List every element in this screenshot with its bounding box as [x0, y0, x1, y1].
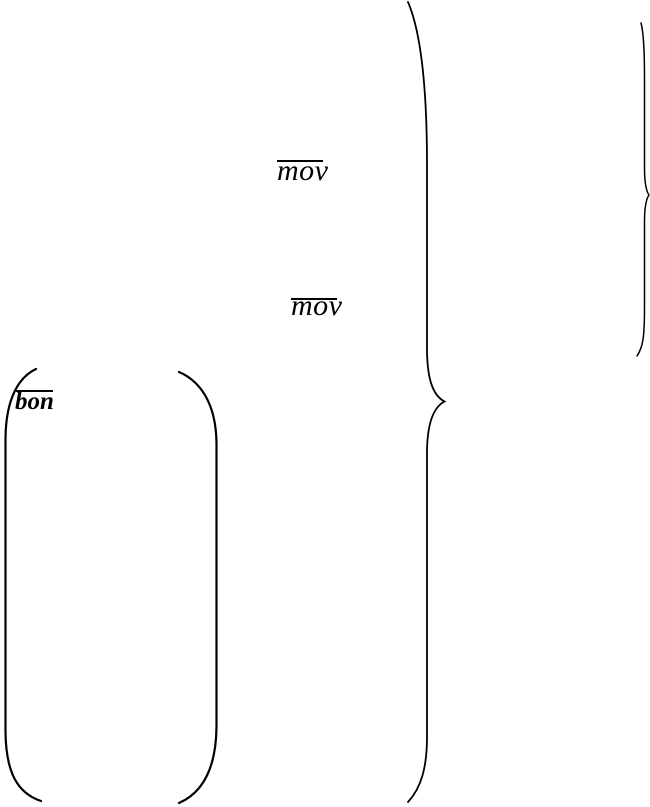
- bon-label: bon: [15, 389, 54, 414]
- delimiter-strokes: [0, 0, 650, 807]
- left-parenthesis-icon: [6, 369, 42, 801]
- large-right-brace-icon: [408, 2, 445, 802]
- mov-top-label: mov: [277, 156, 328, 186]
- equation-canvas: mov mov bon: [0, 0, 650, 807]
- small-right-brace-icon: [637, 23, 649, 356]
- right-parenthesis-icon: [179, 372, 217, 803]
- mov-middle-label: mov: [291, 291, 342, 321]
